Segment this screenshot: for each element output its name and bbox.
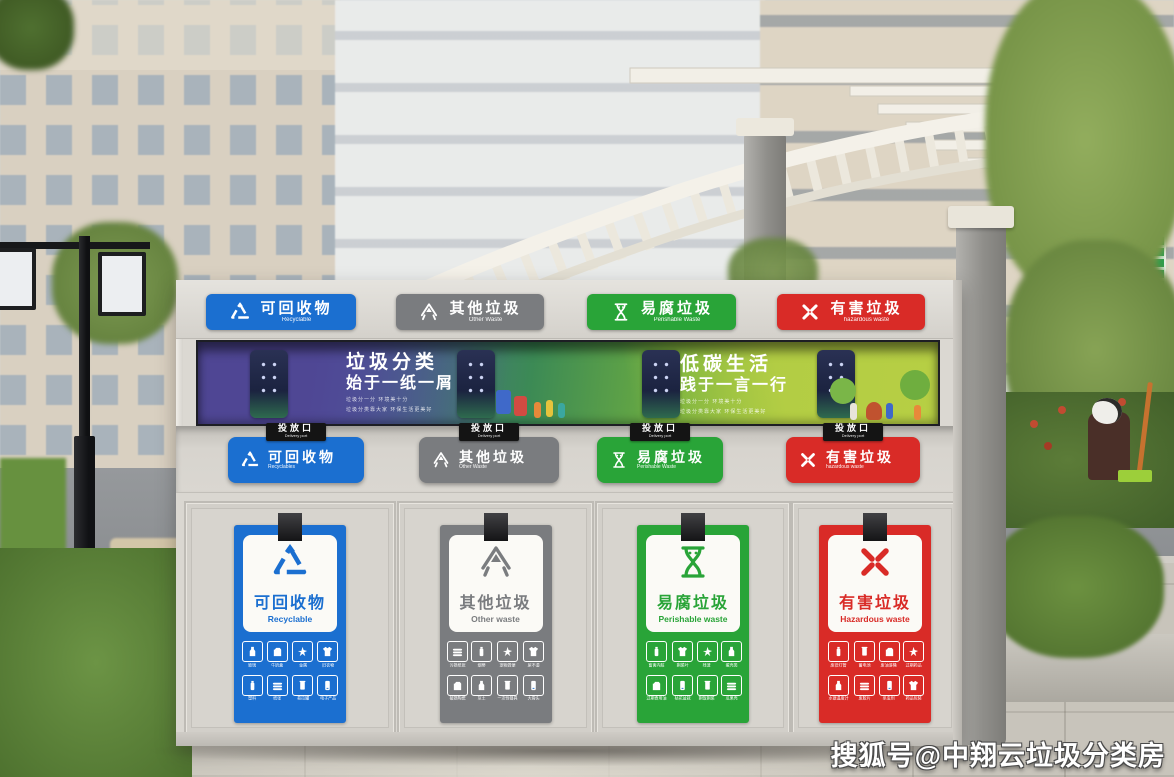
chute-en: Perishable Waste <box>637 465 705 470</box>
other-waste-icon <box>418 301 440 323</box>
slogan-tagline: 垃圾分一分 环境美十分 <box>346 396 454 403</box>
slogan-title: 低碳生活 <box>680 354 788 376</box>
poster-zh: 其他垃圾 <box>449 589 543 613</box>
watermark-text: 搜狐号@中翔云垃圾分类房 <box>831 734 1166 773</box>
poster-clip <box>278 513 302 541</box>
recycle-triangle-icon <box>270 542 310 582</box>
poster-recyclable: 可回收物 Recyclable 玻璃 牛奶盒 金属 旧衣物 塑料 纸张 易拉罐 … <box>234 525 346 723</box>
slogan-title: 垃圾分类 <box>346 352 454 374</box>
clothes-icon <box>322 646 333 657</box>
chute-flap-hazardous[interactable]: 投放口 Delivery port 有害垃圾 hazardous waste <box>786 437 920 483</box>
header-label-recyclable: 可回收物 Recyclable <box>206 294 356 330</box>
scene-photo: 可回收物 Recyclable 其他垃圾 Other Waste 易腐垃圾 Pe… <box>0 0 1174 777</box>
red-flowers <box>1030 420 1038 428</box>
bone-icon <box>528 680 539 691</box>
glass-icon <box>247 646 258 657</box>
poster-en: Perishable waste <box>646 614 740 624</box>
poster-other: 其他垃圾 Other waste 污损纸张 烟蒂 宠物粪便 尿不湿 破损陶瓷 灰… <box>440 525 552 723</box>
slogan-subtitle: 始于一纸一屑 <box>346 374 454 393</box>
chute-en: Other Waste <box>459 465 527 470</box>
pill-pack-icon <box>908 680 919 691</box>
poster-clip <box>484 513 508 541</box>
poster-item-grid: 废旧灯管 蓄电池 废油漆桶 过期药品 水银温度计 废胶片 杀虫剂 药品包装 <box>819 639 931 702</box>
banner-illustration-right <box>826 358 938 422</box>
other-waste-icon <box>431 450 451 470</box>
hourglass-icon <box>673 542 713 582</box>
lawn-strip <box>0 458 66 562</box>
tab-zh: 投放口 <box>630 424 690 434</box>
street-lamp-panel-left <box>0 248 36 310</box>
hazard-x-icon <box>855 542 895 582</box>
poster-en: Other waste <box>449 614 543 624</box>
header-label-perishable: 易腐垃圾 Perishable Waste <box>587 294 736 330</box>
chute-en: Recyclables <box>268 465 336 470</box>
poster-perishable: 易腐垃圾 Perishable waste 畜禽内脏 剩菜叶 残渣 蛋壳类 过期… <box>637 525 749 723</box>
banner-poster: 垃圾分类 始于一纸一屑 垃圾分一分 环境美十分 垃圾分类靠大家 环保生活更美好 … <box>198 342 938 424</box>
poster-item-grid: 污损纸张 烟蒂 宠物粪便 尿不湿 破损陶瓷 灰土 一次性餐具 大骨头 <box>440 639 552 702</box>
chute-zh: 有害垃圾 <box>826 450 894 465</box>
header-label-hazardous: 有害垃圾 hazardous waste <box>777 294 925 330</box>
street-lamp-pole-base <box>74 436 95 566</box>
cigarette-icon <box>476 646 487 657</box>
insecticide-icon <box>884 680 895 691</box>
grass-tuft-right <box>988 516 1164 658</box>
header-label-en: Recyclable <box>260 317 332 323</box>
banner-slogan-right: 低碳生活 践于一言一行 垃圾分一分 环境美十分 垃圾分类靠大家 环保生活更美好 <box>680 354 788 415</box>
phone-mockup <box>250 350 288 418</box>
tab-en: Delivery port <box>636 434 684 438</box>
tab-zh: 投放口 <box>823 424 883 434</box>
battery-icon <box>859 646 870 657</box>
chute-zh: 可回收物 <box>268 450 336 465</box>
recycle-triangle-icon <box>240 450 260 470</box>
recycle-triangle-icon <box>229 301 251 323</box>
header-label-zh: 易腐垃圾 <box>641 301 713 318</box>
banner-illustration-mid <box>494 366 584 420</box>
street-lamp-panel-right <box>98 252 146 316</box>
door-other[interactable]: 其他垃圾 Other waste 污损纸张 烟蒂 宠物粪便 尿不湿 破损陶瓷 灰… <box>397 501 594 735</box>
dust-icon <box>476 680 487 691</box>
tab-en: Delivery port <box>465 434 513 438</box>
poster-zh: 易腐垃圾 <box>646 589 740 613</box>
vegetable-icon <box>677 646 688 657</box>
slogan-tagline: 垃圾分类靠大家 环保生活更美好 <box>346 406 454 413</box>
poster-clip <box>863 513 887 541</box>
pergola-column-main-cap <box>948 206 1014 228</box>
leftovers-icon <box>702 680 713 691</box>
slogan-tagline: 垃圾分类靠大家 环保生活更美好 <box>680 408 788 415</box>
chute-panel: 投放口 Delivery port 可回收物 Recyclables 投放口 D… <box>176 426 962 492</box>
chute-flap-perishable[interactable]: 投放口 Delivery port 易腐垃圾 Perishable Waste <box>597 437 723 483</box>
header-label-en: Other Waste <box>449 317 521 323</box>
hazard-x-icon <box>798 450 818 470</box>
pet-waste-icon <box>502 646 513 657</box>
chute-flap-recyclable[interactable]: 投放口 Delivery port 可回收物 Recyclables <box>228 437 364 483</box>
tab-en: Delivery port <box>272 434 320 438</box>
door-hazardous[interactable]: 有害垃圾 Hazardous waste 废旧灯管 蓄电池 废油漆桶 过期药品 … <box>791 501 959 735</box>
delivery-port-tab: 投放口 Delivery port <box>266 423 326 441</box>
eggshell-icon <box>726 646 737 657</box>
thermometer-icon <box>833 680 844 691</box>
poster-clip <box>681 513 705 541</box>
pergola-column-main <box>956 222 1006 745</box>
electronics-icon <box>322 680 333 691</box>
ceramic-icon <box>452 680 463 691</box>
poster-en: Hazardous waste <box>828 614 922 624</box>
hourglass-icon <box>610 301 632 323</box>
header-label-en: Perishable Waste <box>641 317 713 323</box>
slogan-tagline: 垃圾分一分 环境美十分 <box>680 398 788 405</box>
poster-hazardous: 有害垃圾 Hazardous waste 废旧灯管 蓄电池 废油漆桶 过期药品 … <box>819 525 931 723</box>
waste-sorting-kiosk: 可回收物 Recyclable 其他垃圾 Other Waste 易腐垃圾 Pe… <box>176 280 962 746</box>
poster-zh: 有害垃圾 <box>828 589 922 613</box>
potted-plant-icon <box>677 680 688 691</box>
slogan-subtitle: 践于一言一行 <box>680 376 788 395</box>
poster-zh: 可回收物 <box>243 589 337 613</box>
phone-mockup <box>642 350 680 418</box>
medicine-icon <box>908 646 919 657</box>
other-waste-icon <box>476 542 516 582</box>
poster-en: Recyclable <box>243 614 337 624</box>
cooking-oil-icon <box>651 680 662 691</box>
apartment-building-middle <box>335 0 765 300</box>
delivery-port-tab: 投放口 Delivery port <box>823 423 883 441</box>
plastic-icon <box>247 680 258 691</box>
milk-carton-icon <box>272 646 283 657</box>
diaper-icon <box>528 646 539 657</box>
panda-bin-head <box>1092 398 1122 424</box>
chute-en: hazardous waste <box>826 465 894 470</box>
kiosk-door-section: 可回收物 Recyclable 玻璃 牛奶盒 金属 旧衣物 塑料 纸张 易拉罐 … <box>176 492 962 733</box>
door-perishable[interactable]: 易腐垃圾 Perishable waste 畜禽内脏 剩菜叶 残渣 蛋壳类 过期… <box>595 501 791 735</box>
paper-icon <box>272 680 283 691</box>
tab-zh: 投放口 <box>266 424 326 434</box>
disposable-tableware-icon <box>502 680 513 691</box>
dustpan <box>1118 470 1152 482</box>
chute-zh: 易腐垃圾 <box>637 450 705 465</box>
chute-flap-other[interactable]: 投放口 Delivery port 其他垃圾 Other Waste <box>419 437 559 483</box>
hourglass-icon <box>609 450 629 470</box>
fruit-peel-icon <box>726 680 737 691</box>
poster-item-grid: 畜禽内脏 剩菜叶 残渣 蛋壳类 过期食用油 枯花盆栽 剩饭剩菜 瓜果壳 <box>637 639 749 702</box>
banner-frame: 垃圾分类 始于一纸一屑 垃圾分一分 环境美十分 垃圾分类靠大家 环保生活更美好 … <box>196 340 940 426</box>
header-label-other: 其他垃圾 Other Waste <box>396 294 544 330</box>
soiled-paper-icon <box>452 646 463 657</box>
metal-icon <box>297 646 308 657</box>
header-label-en: hazardous waste <box>830 317 902 323</box>
paint-bucket-icon <box>884 646 895 657</box>
delivery-port-tab: 投放口 Delivery port <box>630 423 690 441</box>
offal-icon <box>651 646 662 657</box>
tab-zh: 投放口 <box>459 424 519 434</box>
banner-slogan-left: 垃圾分类 始于一纸一屑 垃圾分一分 环境美十分 垃圾分类靠大家 环保生活更美好 <box>346 352 454 413</box>
header-label-zh: 其他垃圾 <box>449 301 521 318</box>
pergola-column-small-cap <box>736 118 794 136</box>
header-label-zh: 可回收物 <box>260 301 332 318</box>
film-icon <box>859 680 870 691</box>
poster-item-grid: 玻璃 牛奶盒 金属 旧衣物 塑料 纸张 易拉罐 电子产品 <box>234 639 346 702</box>
chute-zh: 其他垃圾 <box>459 450 527 465</box>
delivery-port-tab: 投放口 Delivery port <box>459 423 519 441</box>
can-icon <box>297 680 308 691</box>
hazard-x-icon <box>799 301 821 323</box>
door-recyclable[interactable]: 可回收物 Recyclable 玻璃 牛奶盒 金属 旧衣物 塑料 纸张 易拉罐 … <box>184 501 396 735</box>
tab-en: Delivery port <box>829 434 877 438</box>
lamp-tube-icon <box>833 646 844 657</box>
header-label-zh: 有害垃圾 <box>830 301 902 318</box>
phone-mockup <box>457 350 495 418</box>
scraps-icon <box>702 646 713 657</box>
